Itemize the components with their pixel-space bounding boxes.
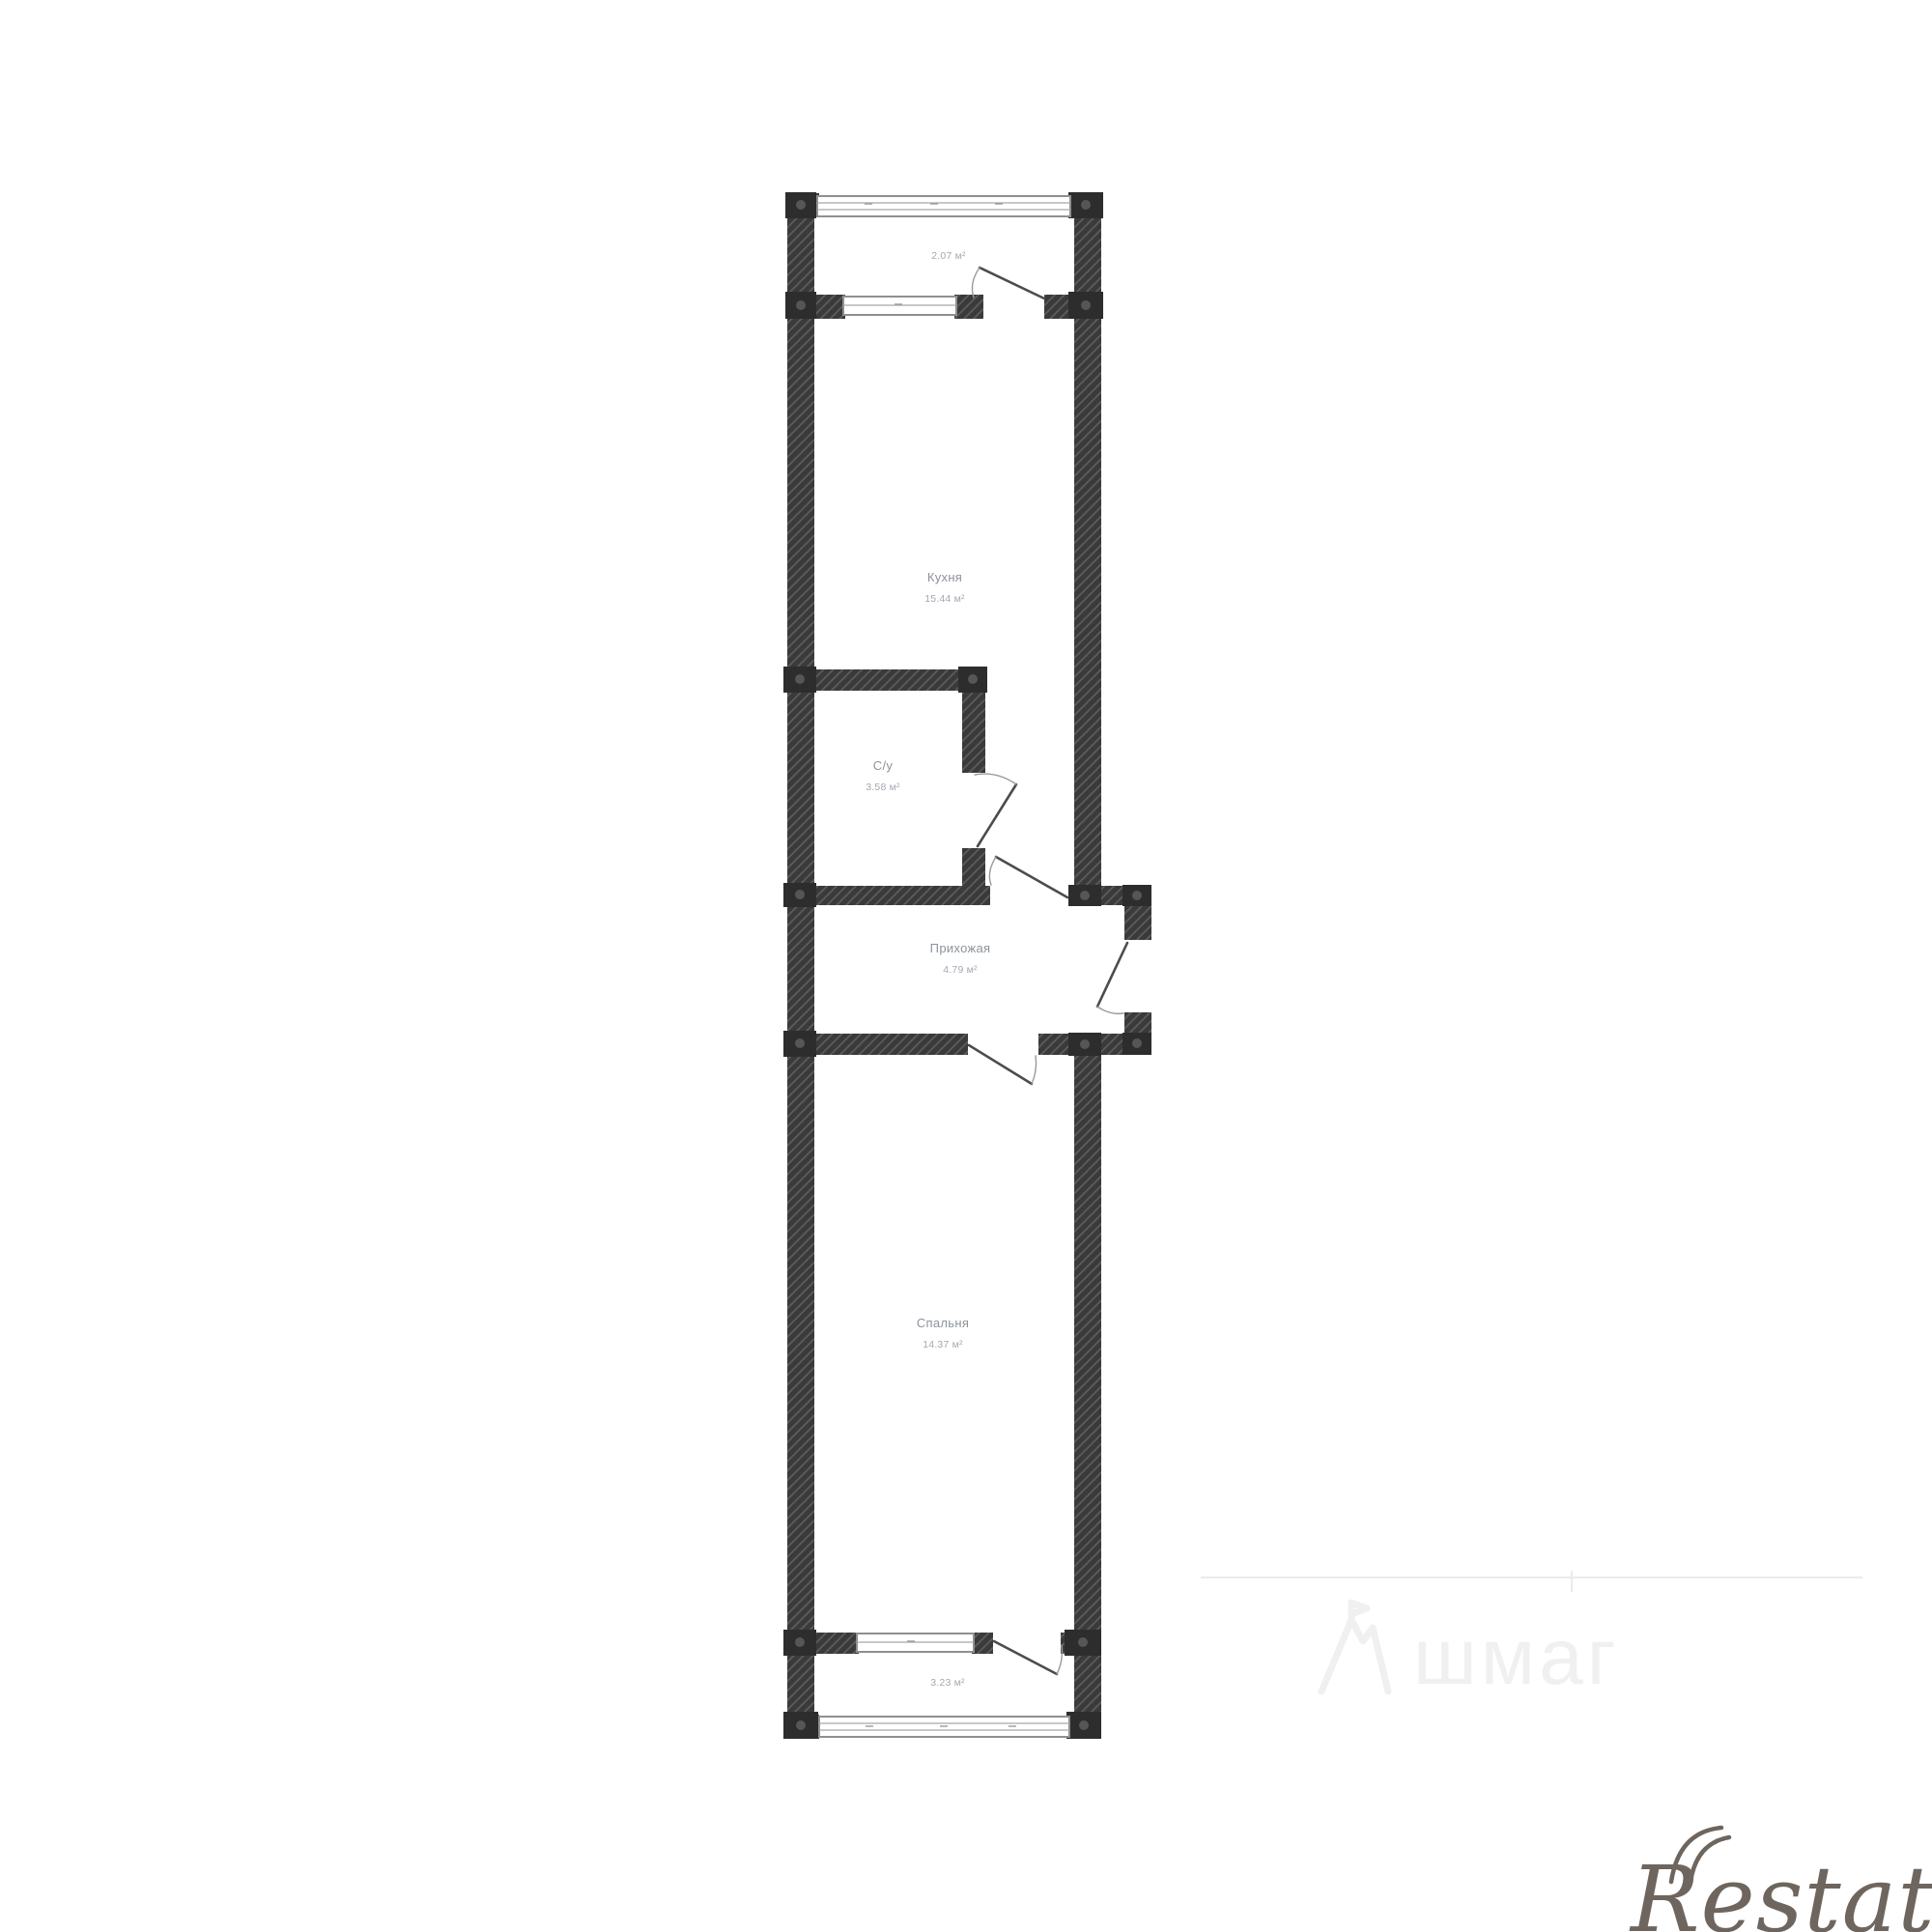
window-bedroom-balcony	[857, 1634, 974, 1652]
wall-bedroom-bottom-a	[814, 1633, 859, 1654]
wall-bedroom-bottom-stub	[972, 1633, 993, 1654]
window-balcony-top-outer	[817, 196, 1070, 216]
faint-guide-line	[1201, 1571, 1862, 1592]
floorplan-page: 2.07 м² Кухня 15.44 м² С/у 3.58 м² Прихо…	[0, 0, 1932, 1932]
door-kitchen	[989, 857, 1067, 897]
door-balcony-bottom	[994, 1641, 1062, 1674]
windows	[817, 196, 1070, 1737]
window-balcony-top-inner	[843, 297, 956, 315]
door-bathroom	[975, 774, 1016, 846]
wall-hallway-top	[814, 886, 990, 905]
wall-bathroom-right-upper	[962, 691, 985, 773]
door-entrance	[1097, 943, 1127, 1013]
wall-entry-nook-right-upper	[1124, 905, 1151, 940]
floorplan-drawing	[0, 0, 1932, 1932]
wall-entry-nook-right-lower	[1124, 1012, 1151, 1034]
wall-hallway-bottom-left	[814, 1034, 968, 1055]
door-balcony-top	[972, 268, 1044, 298]
wall-balcony-top-inner-b	[954, 295, 983, 319]
wall-left	[787, 193, 814, 1739]
window-dimension-marks	[865, 204, 1016, 1726]
walls	[787, 193, 1151, 1739]
wall-balcony-top-inner-a	[814, 295, 845, 319]
wall-bathroom-right-stub	[962, 848, 985, 886]
doors	[969, 268, 1127, 1674]
door-bedroom	[969, 1045, 1037, 1084]
